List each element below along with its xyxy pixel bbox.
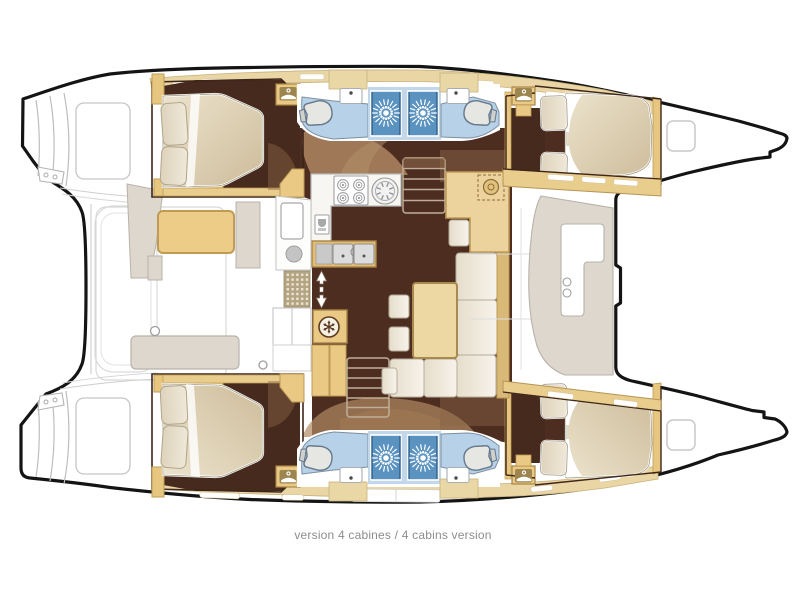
svg-text:version 4 cabines / 4 cabins v: version 4 cabines / 4 cabins version — [294, 528, 491, 542]
